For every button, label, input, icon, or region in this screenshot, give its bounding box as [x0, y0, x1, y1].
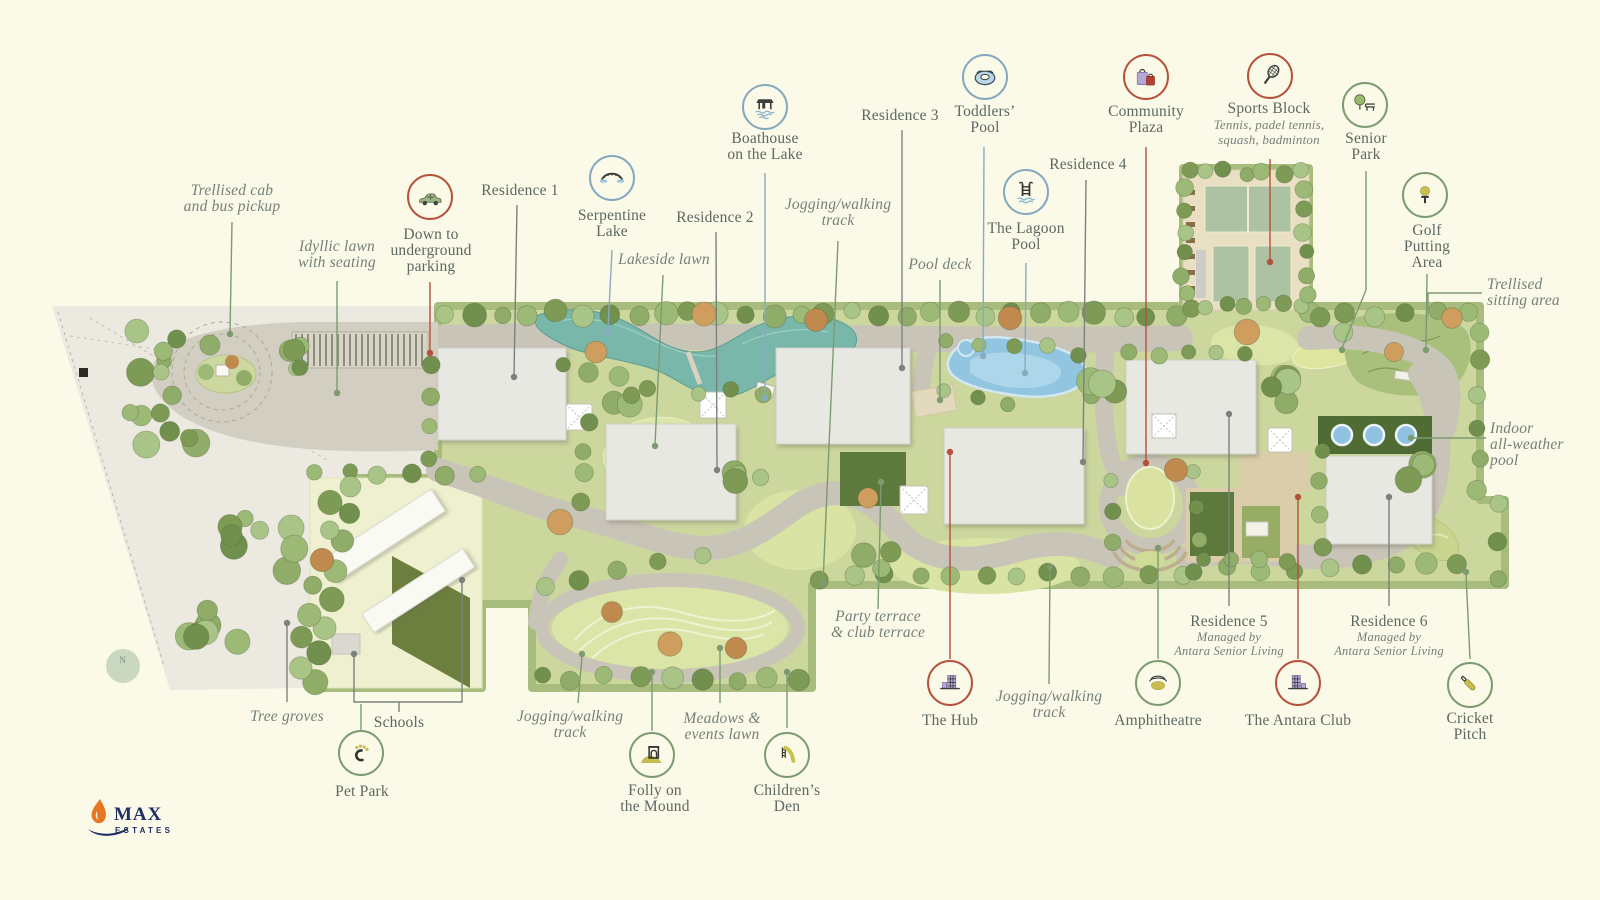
label-childrens-den: Children’sDen	[754, 783, 821, 815]
label-residence-3: Residence 3	[861, 108, 939, 124]
lawns	[286, 321, 1370, 594]
cricket-bat-icon	[1447, 662, 1493, 708]
pool-deck-area	[911, 385, 957, 418]
max-estates-logo: MAX ESTATES	[84, 797, 224, 848]
slide-icon	[764, 732, 810, 778]
site-plan-canvas: Trellised caband bus pickup Idyllic lawn…	[0, 0, 1600, 900]
label-boathouse: Boathouseon the Lake	[727, 131, 802, 163]
label-jogging-track-west: Jogging/walkingtrack	[517, 709, 623, 741]
residence-4-building	[944, 428, 1084, 524]
indoor-pool-area	[1318, 416, 1432, 454]
label-trellised-sitting-area: Trellisedsitting area	[1487, 277, 1560, 309]
folly-arch-icon	[629, 732, 675, 778]
roads	[438, 336, 1449, 676]
amphitheatre-icon	[1135, 660, 1181, 706]
label-lagoon-pool: The LagoonPool	[987, 221, 1064, 253]
label-lakeside-lawn: Lakeside lawn	[618, 252, 710, 268]
label-tree-groves: Tree groves	[250, 709, 324, 725]
label-amphitheatre: Amphitheatre	[1114, 713, 1202, 729]
label-residence-1: Residence 1	[481, 183, 559, 199]
serpentine-lake	[535, 310, 857, 399]
label-down-parking: Down toundergroundparking	[390, 227, 471, 275]
amphitheatre-area	[1114, 467, 1186, 570]
label-residence-5: Residence 5Managed byAntara Senior Livin…	[1174, 614, 1284, 658]
trellised-sitting-garden	[1344, 313, 1470, 395]
buildings-icon	[927, 660, 973, 706]
car-icon	[407, 174, 453, 220]
label-residence-2: Residence 2	[676, 210, 754, 226]
paw-icon	[338, 730, 384, 776]
label-sports-block: Sports BlockTennis, padel tennis,squash,…	[1214, 101, 1325, 147]
residence-3-building	[776, 348, 910, 444]
shopping-bags-icon	[1123, 54, 1169, 100]
label-antara-club: The Antara Club	[1245, 713, 1351, 729]
tennis-racket-icon	[1247, 53, 1293, 99]
label-golf-putting-area: GolfPuttingArea	[1404, 223, 1450, 271]
residence-buildings	[438, 348, 1432, 544]
label-senior-park: SeniorPark	[1345, 131, 1387, 163]
label-toddlers-pool: Toddlers’Pool	[955, 104, 1016, 136]
label-residence-4: Residence 4	[1049, 157, 1127, 173]
pool-ladder-icon	[1003, 169, 1049, 215]
label-idyllic-lawn: Idyllic lawnwith seating	[298, 239, 376, 271]
lagoon-pool-area	[911, 337, 1086, 417]
sports-block-area	[1183, 170, 1309, 310]
southeast-garden	[1397, 506, 1467, 570]
golf-ball-tee-icon	[1402, 172, 1448, 218]
trellis-parking-strip	[292, 332, 428, 368]
label-meadows: Meadows &events lawn	[683, 711, 760, 743]
svg-text:MAX: MAX	[114, 804, 162, 825]
residence-1-building	[438, 348, 566, 440]
club-terrace-area	[1186, 452, 1310, 562]
north-indicator: N	[106, 649, 140, 683]
label-indoor-pool: Indoorall-weatherpool	[1490, 421, 1564, 469]
flame-icon	[92, 799, 106, 823]
label-cricket-pitch: CricketPitch	[1446, 711, 1493, 743]
boathouse-structure	[755, 382, 775, 398]
boathouse-icon	[742, 84, 788, 130]
label-pool-deck: Pool deck	[908, 257, 971, 273]
hatched-courts	[566, 392, 1292, 514]
label-jogging-track-north: Jogging/walkingtrack	[785, 197, 891, 229]
label-serpentine-lake: SerpentineLake	[578, 208, 646, 240]
meadows-area	[552, 587, 788, 669]
schools-area	[310, 478, 482, 688]
bridge-icon	[589, 155, 635, 201]
label-jogging-track-mid: Jogging/walkingtrack	[996, 689, 1102, 721]
label-folly: Folly onthe Mound	[620, 783, 689, 815]
residence-5-building	[1126, 360, 1256, 454]
toddlers-pool-shape	[958, 340, 974, 356]
label-residence-6: Residence 6Managed byAntara Senior Livin…	[1334, 614, 1444, 658]
label-community-plaza: CommunityPlaza	[1108, 104, 1184, 136]
label-trellised-cab: Trellised caband bus pickup	[184, 183, 281, 215]
buildings-icon	[1275, 660, 1321, 706]
label-schools: Schools	[374, 715, 425, 731]
residence-6-building	[1326, 456, 1432, 544]
swim-ring-icon	[962, 54, 1008, 100]
tree-bench-icon	[1342, 82, 1388, 128]
label-pet-park: Pet Park	[335, 784, 389, 800]
survey-marker	[79, 368, 88, 377]
party-terrace-area	[840, 452, 906, 506]
residence-2-building	[606, 424, 736, 520]
label-party-terrace: Party terrace& club terrace	[831, 609, 925, 641]
svg-text:ESTATES: ESTATES	[115, 826, 173, 835]
entry-roundabout	[151, 322, 438, 451]
label-the-hub: The Hub	[922, 713, 978, 729]
entry-plaza-area	[52, 306, 438, 690]
